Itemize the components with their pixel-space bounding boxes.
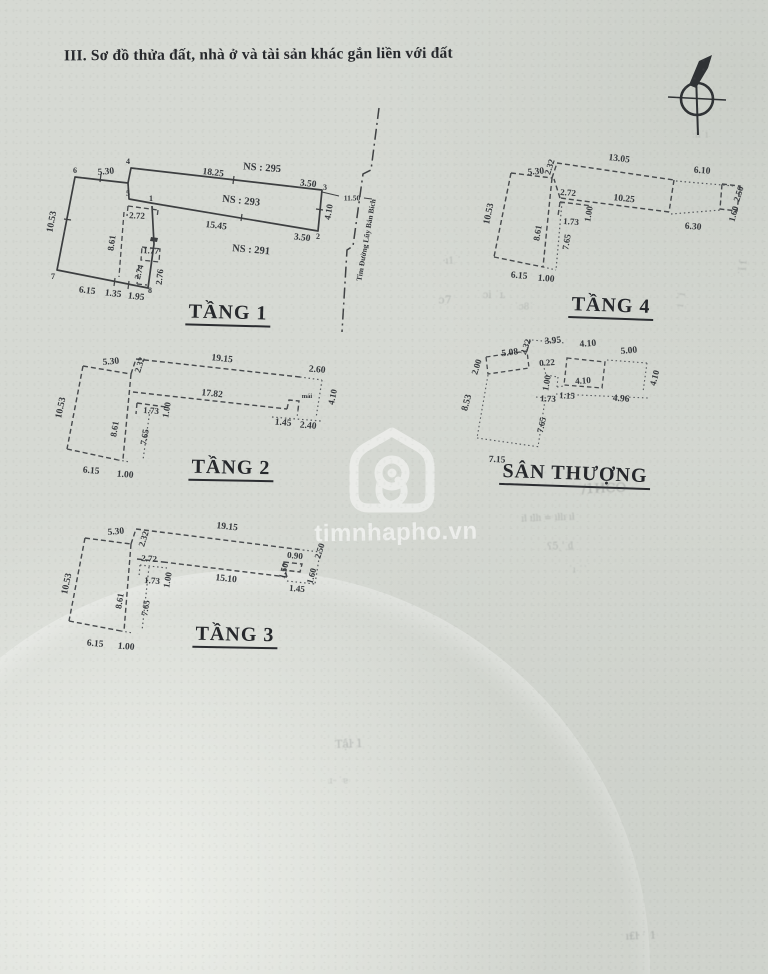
dim-label: 1.35 <box>104 289 122 300</box>
bleed-through-mark: ɔi ˙ʟ <box>483 291 505 301</box>
dim-label: 2.40 <box>299 422 316 433</box>
dim-label: 2.32 <box>519 338 533 356</box>
dim-label: 10.53 <box>55 397 69 420</box>
dim-label: 18.25 <box>202 168 224 180</box>
dim-label: 1.00 <box>162 571 174 588</box>
dim-label: 1 <box>149 195 153 203</box>
dim-label: NS : 291 <box>232 244 271 258</box>
dim-label: 4.10 <box>579 340 596 351</box>
dim-label: 2.32 <box>543 158 556 176</box>
dim-label: 19.15 <box>211 354 233 366</box>
dim-label: 2.76 <box>155 269 166 286</box>
dim-label: 1.77 <box>143 246 159 256</box>
dim-label: 1.00 <box>583 205 595 222</box>
dim-label: 1.73 <box>540 394 556 404</box>
dim-label: 4 <box>126 158 130 166</box>
dim-label: 4.10 <box>649 369 662 387</box>
dim-label: 5.30 <box>107 528 124 539</box>
dim-label: 8.61 <box>109 420 121 437</box>
dim-label: 7.65 <box>561 233 573 250</box>
dim-label: 1.00 <box>117 643 134 654</box>
floor-label-san-thuong: SÂN THƯỢNG <box>499 460 651 490</box>
dim-label: 7.15 <box>488 456 505 466</box>
bleed-through-mark: ·ı1 ˙ <box>443 258 462 267</box>
dim-label: 3.95 <box>544 337 561 348</box>
dim-label: 5.30 <box>97 168 114 179</box>
bleed-through-mark: ʕ5ˎ' ₫ <box>547 541 574 552</box>
bleed-through-mark: ːn˙ı <box>692 132 708 141</box>
dim-label: 4.10 <box>327 388 339 405</box>
dim-label: 5.30 <box>102 358 119 369</box>
dim-label: 1.73 <box>563 217 579 227</box>
dim-label: 4.10 <box>323 203 335 220</box>
dim-label: 6.15 <box>78 286 96 297</box>
dim-label: 5 <box>126 190 130 198</box>
dim-label: 6.15 <box>82 467 99 478</box>
dim-label: 7.65 <box>139 428 151 445</box>
dim-label: 11.50 <box>344 194 360 202</box>
dim-label: 2.32 <box>133 356 146 374</box>
dim-label: 2.72 <box>560 188 576 198</box>
dim-label: 6 <box>73 167 77 175</box>
bleed-through-mark: /1ИСÒ <box>581 482 626 497</box>
dim-label: NS : 295 <box>243 162 282 175</box>
dim-label: 2.74 <box>133 264 145 280</box>
bleed-through-mark: ɹ· ˙ɐ <box>328 778 348 787</box>
dim-label: 13.05 <box>608 154 630 166</box>
dim-label: 1.73 <box>143 406 159 416</box>
dim-label: NS : 293 <box>222 195 261 209</box>
dim-label: 7.65 <box>140 599 152 616</box>
dim-label: 1.50 <box>278 562 291 580</box>
dim-label: 1.60 <box>728 205 741 223</box>
dim-label: 8.61 <box>106 235 117 252</box>
dim-label: 4.96 <box>612 395 629 406</box>
watermark-text: timnhapho.vn <box>314 518 478 549</box>
dim-label: 1.60 <box>306 567 319 585</box>
bleed-through-mark: ı£ŀ ˙ 1 <box>626 931 657 942</box>
floor-label-tang4: TẦNG 4 <box>568 293 654 321</box>
dim-label: 6.15 <box>510 272 527 283</box>
dim-label: 7.65 <box>536 416 548 433</box>
dim-label: 10.53 <box>46 211 59 234</box>
dim-label: 4.10 <box>575 376 591 386</box>
dim-label: 6.10 <box>693 167 710 178</box>
dim-label: 1.00 <box>537 275 554 286</box>
dim-label: 2.72 <box>141 554 157 564</box>
dimension-labels-layer: TẦNG 165.30418.25NS : 2953.503NS : 29315… <box>0 0 768 974</box>
floor-label-tang3: TẦNG 3 <box>192 623 277 649</box>
dim-label: 15.45 <box>205 221 227 233</box>
dim-label: 8.61 <box>532 224 544 241</box>
dim-label: 7 <box>51 273 55 281</box>
bleed-through-mark: ˙ɔ8˙ <box>514 304 534 313</box>
dim-label: 2.50 <box>732 185 745 203</box>
bleed-through-mark: ˙ǐ ſ <box>738 260 749 276</box>
dim-label: 5.08 <box>501 348 519 359</box>
floor-label-tang2: TẦNG 2 <box>188 456 273 482</box>
dim-label: 1.95 <box>127 292 145 303</box>
bleed-through-mark: ıl ıllı ≐ ıllı ıl <box>521 514 575 525</box>
dim-label: 1.00 <box>541 374 553 391</box>
dim-label: mái <box>302 394 312 401</box>
dim-label: 1.73 <box>144 576 160 586</box>
bleed-through-mark: ɔ7 <box>438 295 451 306</box>
dim-label: 3.50 <box>299 179 317 190</box>
dim-label: 15.10 <box>215 574 237 586</box>
dim-label: 2.00 <box>470 358 483 376</box>
dim-label: 1.00 <box>161 401 173 418</box>
dim-label: 0.22 <box>539 358 555 368</box>
dim-label: 1.45 <box>289 584 305 594</box>
floor-label-tang1: TẦNG 1 <box>185 300 270 327</box>
dim-label: 2 <box>316 233 320 241</box>
dim-label: 5.00 <box>620 347 637 358</box>
bleed-through-mark: Tậŀ 1 <box>335 738 363 750</box>
dim-label: 8.61 <box>114 592 126 609</box>
dim-label: 1.45 <box>274 419 291 430</box>
dim-label: 2.32 <box>137 530 150 548</box>
dim-label: 10.25 <box>613 194 635 206</box>
dim-label: 0.90 <box>287 551 303 561</box>
dim-label: 10.53 <box>483 203 497 226</box>
dim-label: 1.15 <box>559 391 575 401</box>
bleed-through-mark: ı ˙i <box>676 292 688 308</box>
dim-label: 6.30 <box>684 223 701 234</box>
dim-label: 8.53 <box>461 394 474 413</box>
dim-label: 19.15 <box>216 522 238 534</box>
dim-label: 8 <box>148 287 152 295</box>
bleed-through-mark: ˙ı ˙˙ <box>568 567 587 576</box>
scanned-document-page: III. Sơ đồ thửa đất, nhà ở và tài sản kh… <box>0 0 768 974</box>
dim-label: 2.60 <box>308 366 325 377</box>
dim-label: 1.00 <box>116 471 133 482</box>
dim-label: 3.50 <box>293 233 311 244</box>
dim-label: 6.15 <box>86 640 103 651</box>
dim-label: 17.82 <box>201 389 223 401</box>
dim-label: 3 <box>323 184 327 192</box>
dim-label: 10.53 <box>61 573 75 596</box>
dim-label: 2.72 <box>129 211 145 221</box>
